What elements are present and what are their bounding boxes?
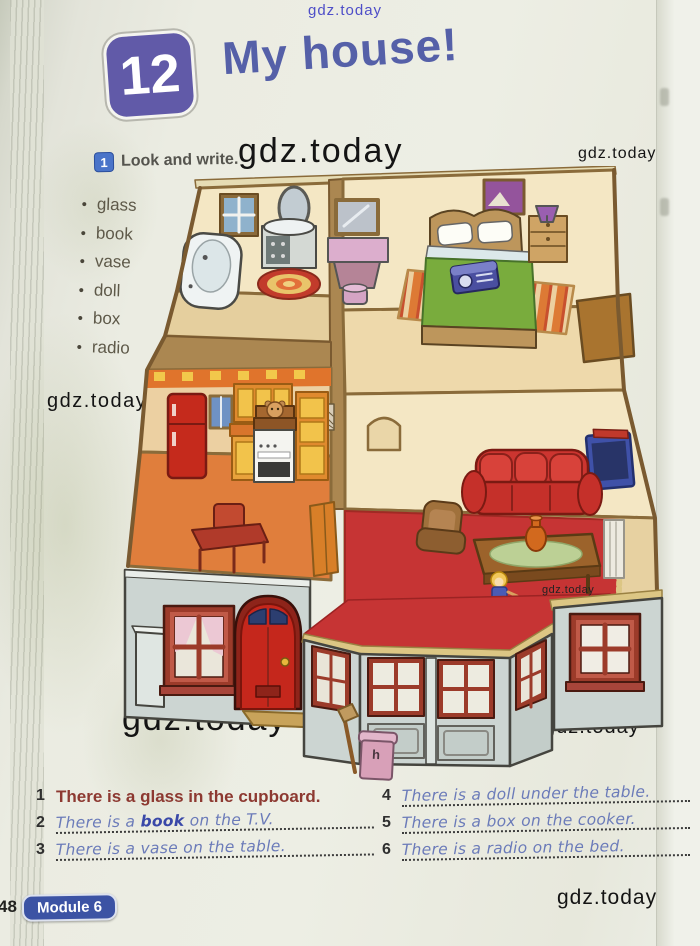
leaning-panel xyxy=(310,502,338,576)
sentence-number: 4 xyxy=(382,787,402,805)
sentence-number: 3 xyxy=(36,841,56,859)
pillow xyxy=(477,221,512,243)
module-number-badge: 12 xyxy=(102,29,198,121)
handwritten-answer: There is a doll under the table. xyxy=(402,782,690,807)
radio-on-bed xyxy=(450,261,499,294)
watermark: gdz.today xyxy=(578,145,656,163)
hamster xyxy=(267,402,283,418)
overwritten-word: book xyxy=(140,812,184,831)
left-window xyxy=(160,606,238,695)
door-knob xyxy=(281,658,289,666)
handwritten-answer: There is a vase on the table. xyxy=(56,835,374,861)
room-bathroom xyxy=(165,183,331,342)
sentences-left-column: 1There is a glass in the cupboard. 2Ther… xyxy=(36,787,388,868)
tall-cupboard xyxy=(296,392,328,480)
task-number-badge: 1 xyxy=(94,152,114,172)
sentence-number: 1 xyxy=(36,787,56,805)
bed xyxy=(422,209,536,348)
radiator xyxy=(604,520,624,578)
handwritten-answer: There is a book on the T.V. xyxy=(56,808,374,834)
page-number: 48 xyxy=(0,897,17,917)
sentence-row: 6There is a radio on the bed. xyxy=(382,841,698,868)
sentence-number: 6 xyxy=(382,841,402,859)
kitchen-window xyxy=(210,396,232,428)
bin-label: h xyxy=(372,747,381,762)
example-sentence: There is a glass in the cupboard. xyxy=(56,787,321,806)
sentence-row: 3There is a vase on the table. xyxy=(36,841,388,868)
stool xyxy=(343,284,367,304)
bullet: • xyxy=(81,196,87,213)
cooker xyxy=(254,430,294,482)
box-with-hamster xyxy=(254,401,296,430)
watermark: gdz.today xyxy=(557,886,657,910)
bullet: • xyxy=(76,338,82,355)
armchair xyxy=(416,500,469,555)
module-badge: Module 6 xyxy=(22,893,117,922)
scan-artifact xyxy=(660,88,669,106)
fridge xyxy=(168,394,206,478)
lamp xyxy=(536,206,558,222)
page-title: My house! xyxy=(221,17,460,85)
floor-slab xyxy=(147,336,331,370)
pink-bin: h xyxy=(357,731,397,780)
desk xyxy=(577,294,634,362)
room-bedroom xyxy=(328,170,634,394)
watermark: gdz.today xyxy=(308,2,382,19)
sofa xyxy=(462,450,602,515)
handwritten-answer: There is a radio on the bed. xyxy=(402,836,690,861)
right-window xyxy=(566,614,644,691)
house-illustration: h xyxy=(122,166,667,781)
round-rug xyxy=(258,269,320,299)
sentences-right-column: 4There is a doll under the table. 5There… xyxy=(382,787,698,868)
handwritten-answer: There is a box on the cooker. xyxy=(402,809,690,834)
bullet: • xyxy=(80,224,86,241)
watermark: gdz.today xyxy=(542,584,594,596)
pillow xyxy=(437,222,473,245)
workbook-page: gdz.today gdz.today gdz.today gdz.today … xyxy=(0,0,700,946)
sentence-number: 2 xyxy=(36,814,56,832)
house-front: h xyxy=(125,570,662,780)
bullet: • xyxy=(77,310,83,327)
room-kitchen xyxy=(128,368,338,580)
archway xyxy=(368,418,400,450)
sentence-number: 5 xyxy=(382,814,402,832)
right-wall xyxy=(550,590,662,730)
bathroom-window xyxy=(220,194,258,236)
bullet: • xyxy=(79,253,85,270)
bullet: • xyxy=(78,281,84,298)
footboard xyxy=(422,326,536,348)
room-living xyxy=(345,390,658,628)
sill xyxy=(160,686,238,695)
front-door xyxy=(235,596,301,709)
